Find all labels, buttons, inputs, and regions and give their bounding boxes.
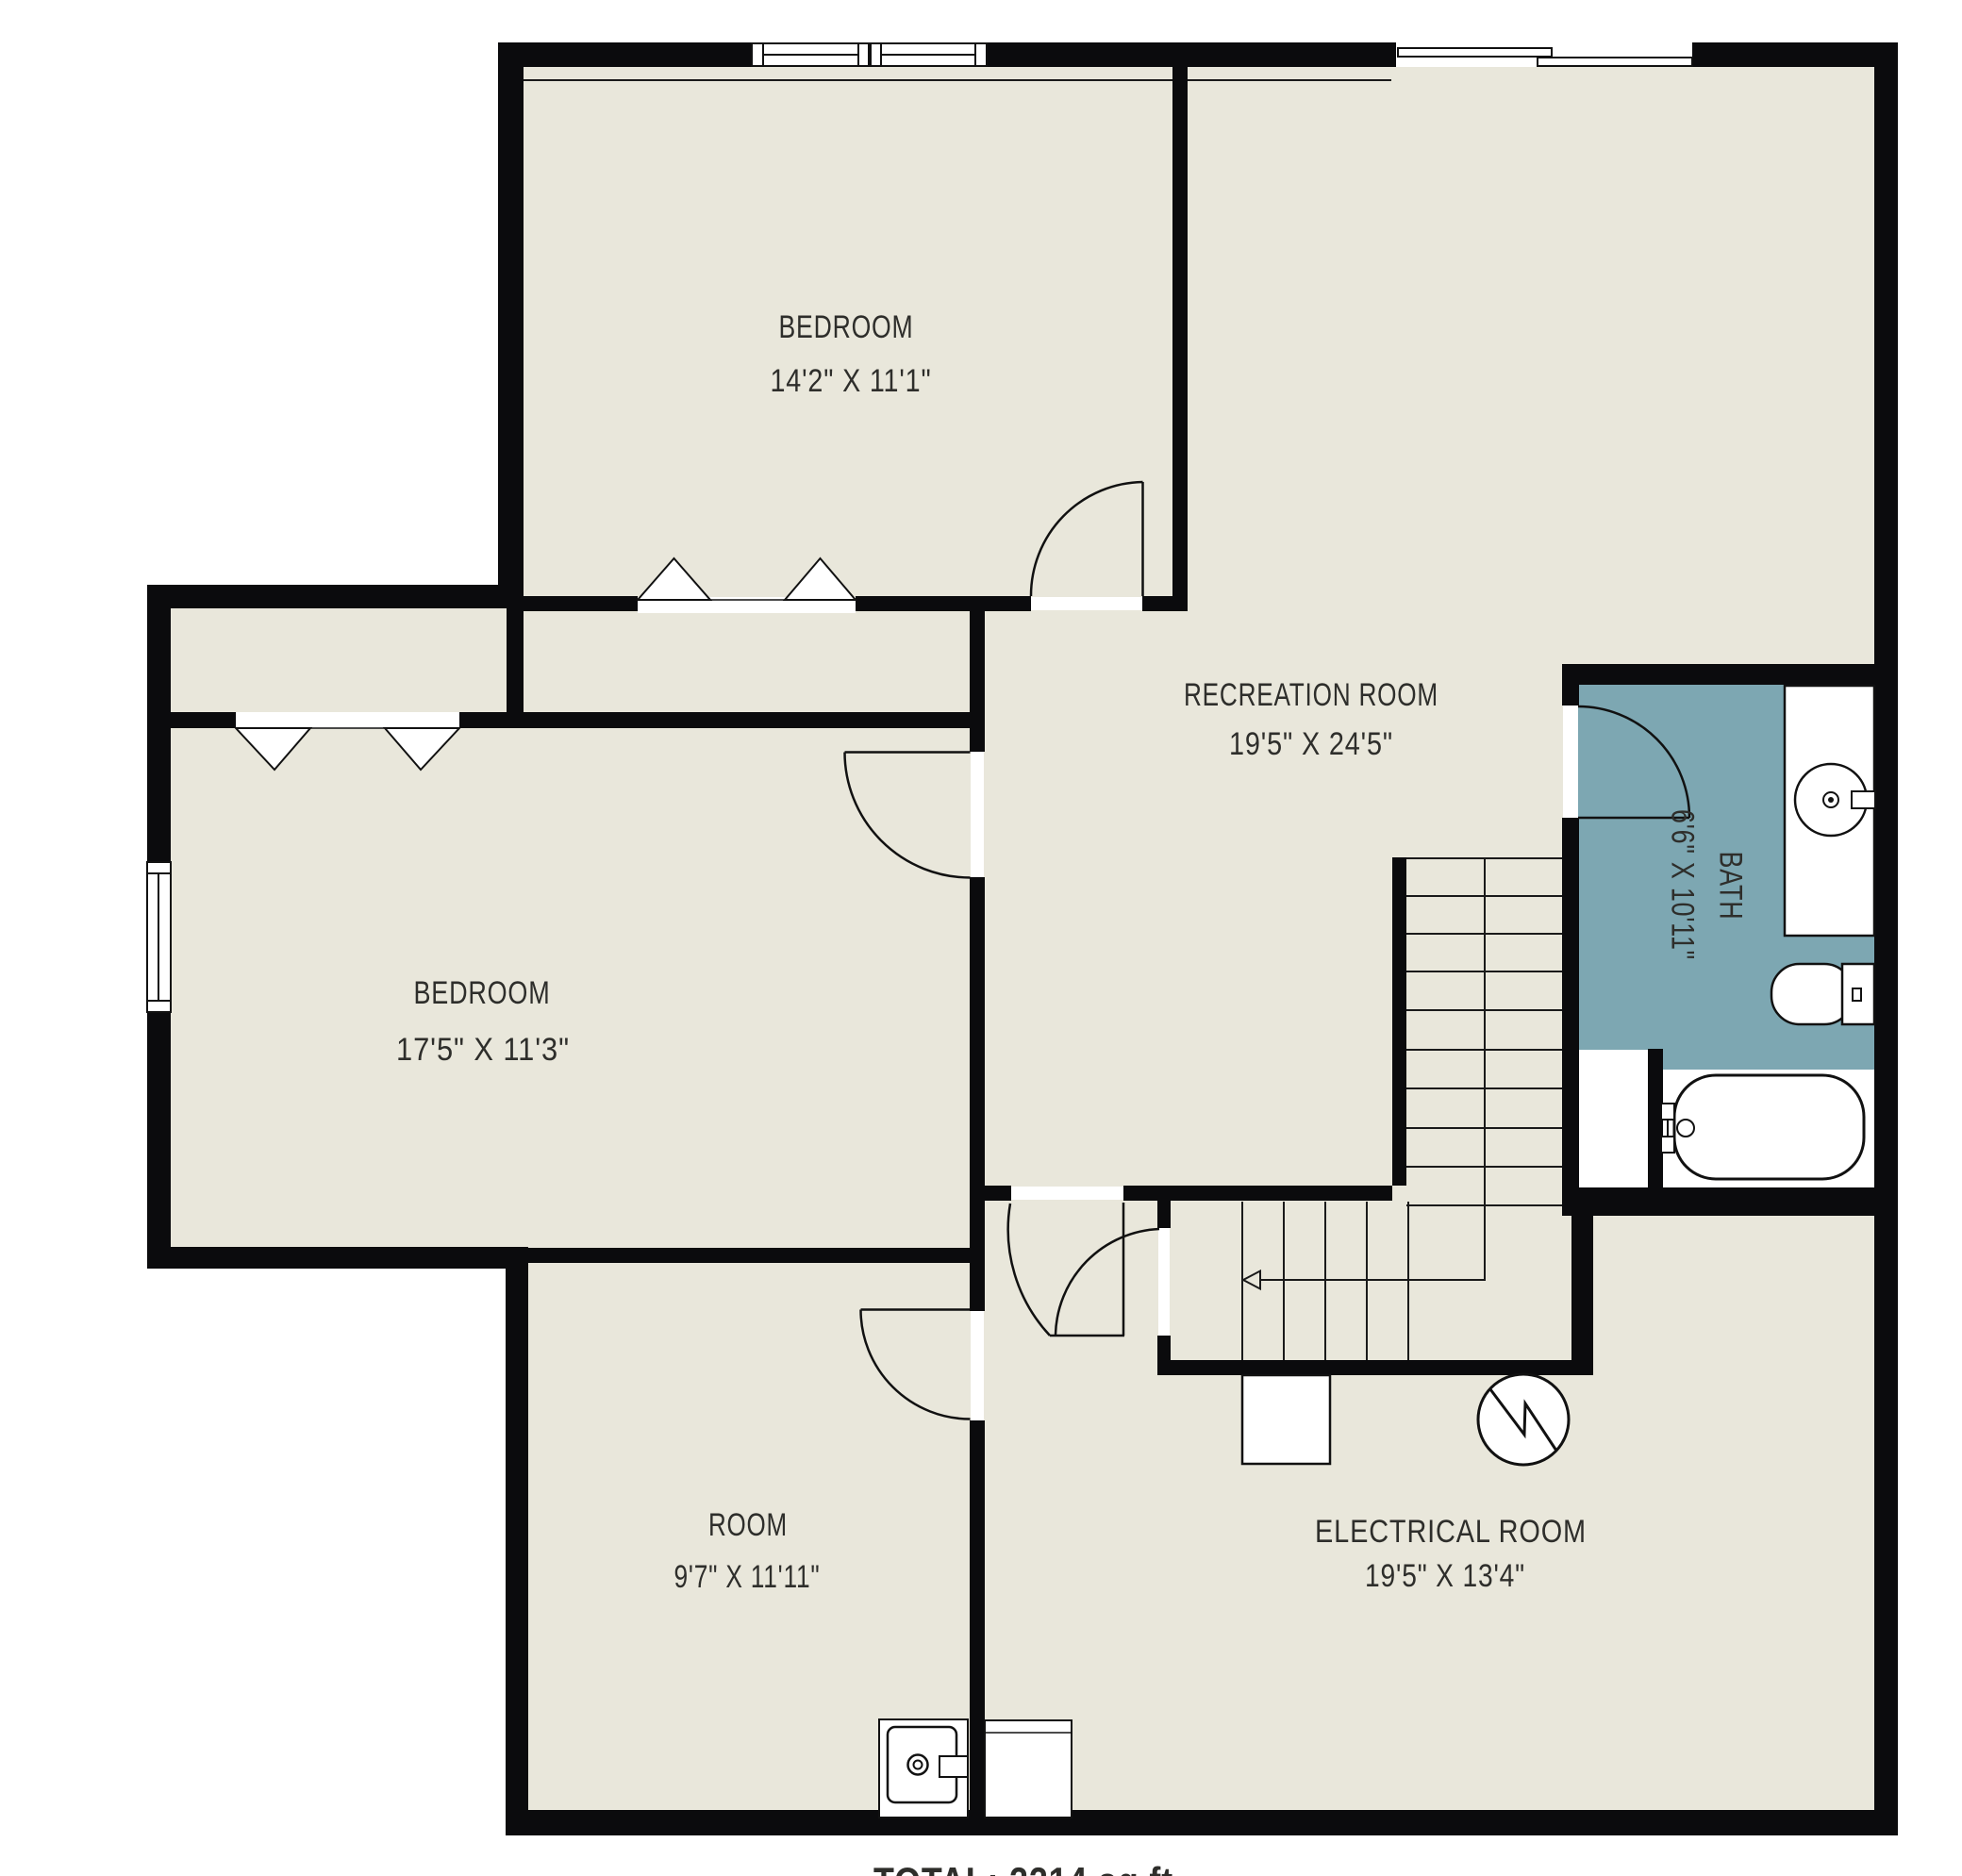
svg-text:19'5" X 24'5": 19'5" X 24'5" <box>1229 726 1393 762</box>
svg-text:BEDROOM: BEDROOM <box>779 309 914 345</box>
svg-text:17'5" X 11'3": 17'5" X 11'3" <box>396 1032 570 1068</box>
svg-text:ROOM: ROOM <box>708 1507 788 1543</box>
svg-text:19'5" X 13'4": 19'5" X 13'4" <box>1365 1558 1525 1594</box>
svg-text:ELECTRICAL ROOM: ELECTRICAL ROOM <box>1315 1514 1587 1550</box>
svg-text:6'6" X 10'11": 6'6" X 10'11" <box>1664 809 1700 960</box>
svg-text:BEDROOM: BEDROOM <box>414 975 551 1011</box>
svg-text:BATH: BATH <box>1713 852 1749 921</box>
svg-text:TOTAL: 2214 sq ft: TOTAL: 2214 sq ft <box>873 1859 1173 1876</box>
svg-text:14'2" X 11'1": 14'2" X 11'1" <box>771 363 932 399</box>
svg-text:RECREATION ROOM: RECREATION ROOM <box>1184 677 1438 713</box>
svg-text:9'7" X 11'11": 9'7" X 11'11" <box>674 1559 821 1595</box>
